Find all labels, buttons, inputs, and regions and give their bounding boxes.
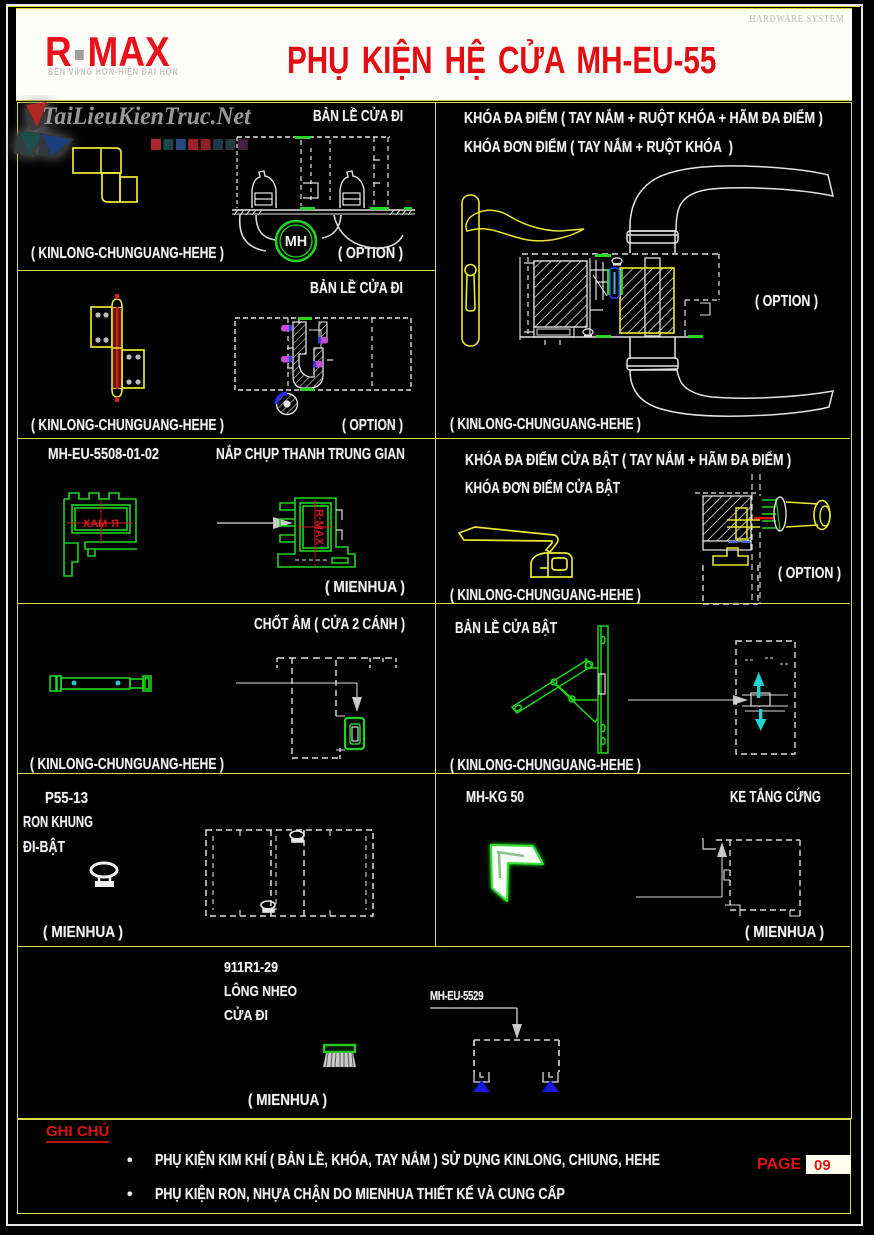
svg-text:MH: MH bbox=[285, 234, 308, 250]
